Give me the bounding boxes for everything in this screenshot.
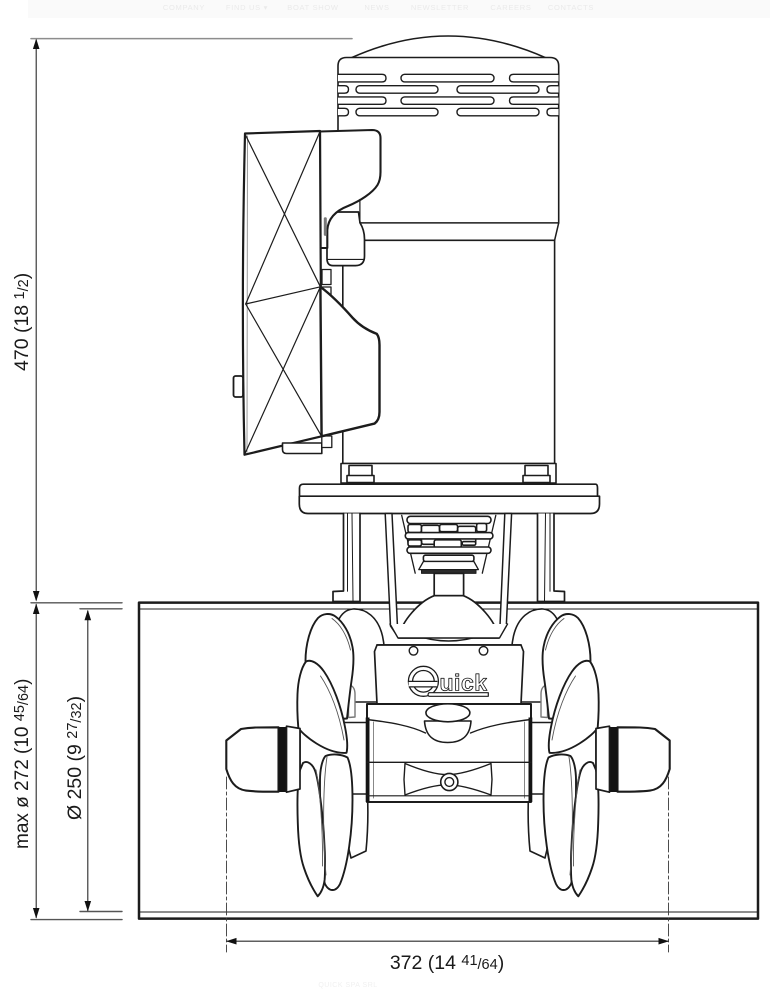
svg-text:COMPANY: COMPANY: [163, 3, 205, 12]
svg-text:NEWSLETTER: NEWSLETTER: [411, 3, 469, 12]
svg-text:BOAT SHOW: BOAT SHOW: [287, 3, 339, 12]
svg-text:CONTACTS: CONTACTS: [548, 3, 594, 12]
svg-text:QUICK SPA SRL: QUICK SPA SRL: [318, 982, 377, 989]
svg-text:NEWS: NEWS: [364, 3, 389, 12]
svg-text:FIND US ▾: FIND US ▾: [226, 3, 268, 12]
svg-text:CAREERS: CAREERS: [490, 3, 531, 12]
svg-text:uick: uick: [440, 670, 488, 696]
svg-text:max ø 272 (10 45/64): max ø 272 (10 45/64): [12, 679, 33, 849]
